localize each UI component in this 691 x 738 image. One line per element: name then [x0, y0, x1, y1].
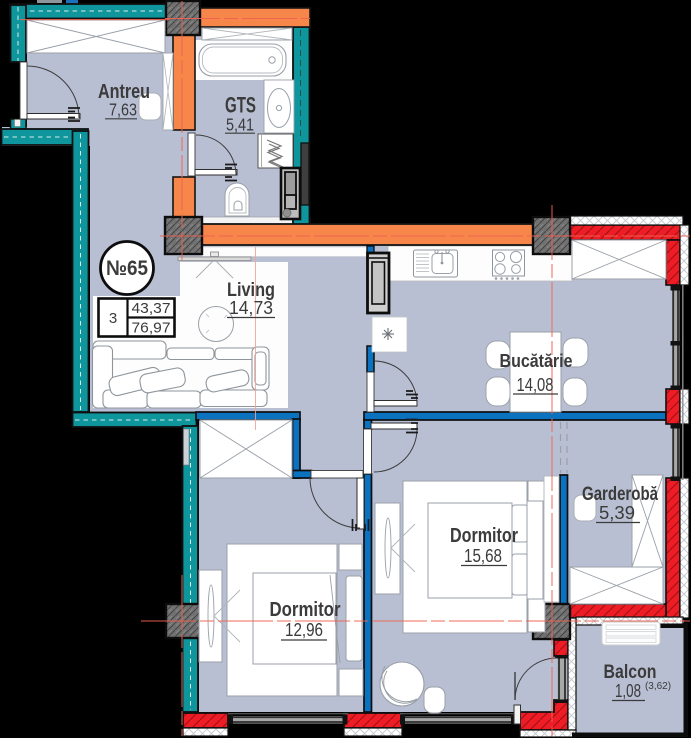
svg-text:76,97: 76,97	[132, 320, 171, 337]
svg-text:3: 3	[109, 310, 117, 327]
svg-text:5,39: 5,39	[599, 503, 635, 523]
svg-text:Garderobă: Garderobă	[582, 484, 658, 505]
svg-text:(3,62): (3,62)	[645, 681, 671, 692]
svg-text:43,37: 43,37	[132, 300, 171, 317]
svg-text:14,08: 14,08	[517, 375, 554, 395]
svg-text:Bucătărie: Bucătărie	[500, 351, 573, 371]
svg-text:Dormitor: Dormitor	[450, 525, 518, 547]
svg-text:№65: №65	[106, 257, 148, 280]
svg-text:5,41: 5,41	[226, 115, 254, 135]
svg-text:Balcon: Balcon	[604, 662, 657, 683]
svg-text:14,73: 14,73	[229, 298, 273, 318]
svg-text:Dormitor: Dormitor	[270, 599, 341, 621]
svg-text:15,68: 15,68	[464, 546, 502, 566]
svg-text:12,96: 12,96	[285, 620, 323, 640]
svg-text:7,63: 7,63	[109, 100, 137, 120]
svg-text:1,08: 1,08	[615, 681, 641, 701]
